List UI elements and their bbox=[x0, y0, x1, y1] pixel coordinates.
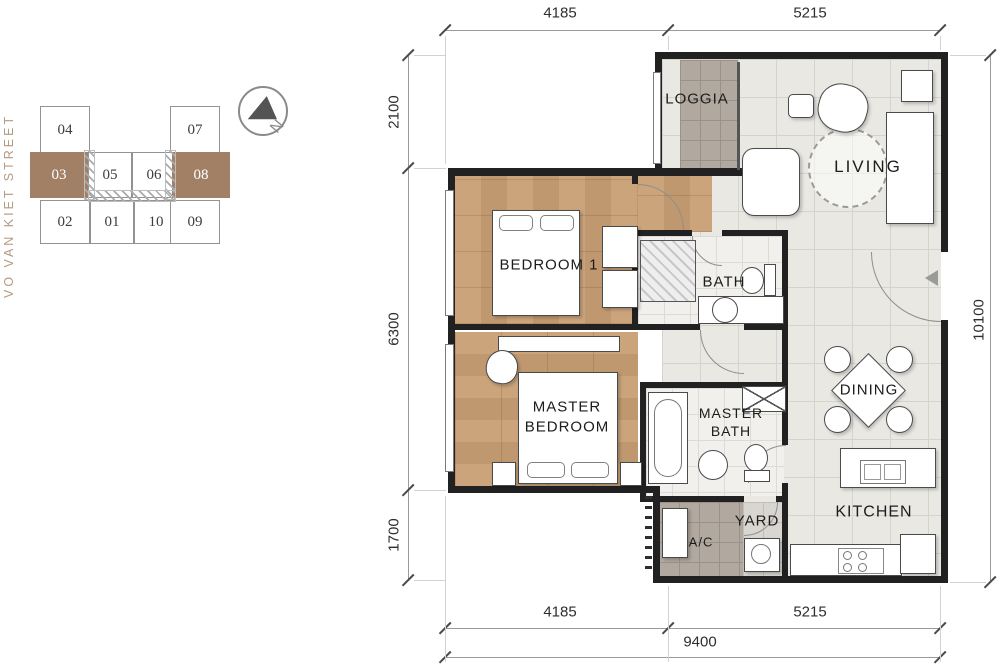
dim-left-1700: 1700 bbox=[386, 518, 403, 551]
dim-extension bbox=[668, 586, 669, 662]
dining-chair bbox=[886, 346, 913, 373]
key-plan-unit-03-highlighted: 03 bbox=[30, 152, 88, 198]
wall-right-upper bbox=[941, 52, 948, 252]
unit-number: 08 bbox=[194, 167, 209, 184]
dim-bottom-total: 9400 bbox=[683, 634, 716, 651]
dim-extension bbox=[414, 55, 446, 56]
wardrobe bbox=[602, 270, 638, 308]
wall-bath-top-right bbox=[722, 230, 788, 236]
dim-bottom-left: 4185 bbox=[543, 604, 576, 621]
ac-louver-icon bbox=[645, 496, 652, 576]
wall-bedroom1-top bbox=[448, 168, 748, 176]
unit-number: 10 bbox=[149, 214, 164, 231]
unit-number: 01 bbox=[105, 214, 120, 231]
shower bbox=[640, 240, 696, 302]
dim-line-left bbox=[408, 55, 409, 580]
unit-number: 07 bbox=[188, 122, 203, 139]
pillow bbox=[499, 215, 533, 231]
unit-number: 09 bbox=[188, 214, 203, 231]
wall-bath-top-left bbox=[632, 230, 692, 236]
dim-top-right: 5215 bbox=[793, 5, 826, 22]
label-ac: A/C bbox=[689, 535, 714, 552]
window-loggia bbox=[653, 72, 661, 164]
dim-extension bbox=[668, 36, 669, 50]
key-plan-unit-01: 01 bbox=[90, 200, 134, 244]
burner-icon bbox=[843, 551, 852, 560]
side-table bbox=[788, 94, 814, 118]
dim-line-bottom-total bbox=[445, 657, 940, 658]
label-living: LIVING bbox=[834, 156, 902, 178]
wall-yard-kitchen-divider bbox=[782, 502, 788, 576]
dim-extension bbox=[414, 490, 446, 491]
dim-bottom-right: 5215 bbox=[793, 604, 826, 621]
entry-arrow-icon bbox=[925, 270, 938, 286]
key-plan-corridor-hatch bbox=[88, 190, 176, 202]
bath-sink bbox=[712, 297, 738, 323]
dim-line-bottom bbox=[445, 628, 940, 629]
dim-extension bbox=[445, 496, 446, 662]
pillow bbox=[527, 462, 565, 478]
label-kitchen: KITCHEN bbox=[835, 503, 912, 524]
key-plan-unit-09: 09 bbox=[170, 200, 220, 244]
key-plan-unit-08-highlighted: 08 bbox=[172, 152, 230, 198]
dim-line-top bbox=[445, 30, 940, 31]
wall-right-lower bbox=[941, 320, 948, 583]
dim-extension bbox=[950, 55, 986, 56]
wall-bedroom1-right-stub bbox=[632, 176, 638, 184]
label-master-bedroom: MASTER BEDROOM bbox=[507, 398, 627, 437]
dim-extension bbox=[940, 586, 941, 662]
label-master-bath: MASTER BATH bbox=[688, 404, 774, 440]
floor-plan-page: VO VAN KIET STREET 04 07 03 05 06 08 02 … bbox=[0, 0, 1000, 668]
sink-bowl bbox=[864, 464, 881, 480]
label-yard: YARD bbox=[735, 511, 780, 531]
toilet-tank bbox=[744, 470, 770, 482]
window-bedroom1 bbox=[445, 190, 454, 316]
unit-number: 03 bbox=[52, 167, 67, 184]
label-loggia: LOGGIA bbox=[665, 89, 729, 109]
toilet bbox=[744, 444, 768, 472]
washer-door-icon bbox=[751, 544, 771, 564]
wall-master-bottom bbox=[448, 486, 660, 493]
cabinet bbox=[901, 70, 933, 102]
street-label: VO VAN KIET STREET bbox=[2, 88, 16, 324]
dim-extension bbox=[414, 168, 446, 169]
dim-extension bbox=[950, 582, 986, 583]
label-dining: DINING bbox=[840, 380, 899, 400]
dim-line-right bbox=[990, 55, 991, 582]
dining-chair bbox=[824, 346, 851, 373]
window-master-bedroom bbox=[445, 344, 454, 472]
key-plan-unit-02: 02 bbox=[40, 200, 90, 244]
dim-extension bbox=[414, 580, 446, 581]
dim-right-10100: 10100 bbox=[971, 299, 988, 341]
burner-icon bbox=[843, 563, 852, 572]
wall-loggia-balustrade bbox=[737, 62, 740, 170]
wall-bottom bbox=[655, 576, 948, 583]
dining-chair bbox=[824, 406, 851, 433]
master-bath-sink bbox=[698, 450, 728, 480]
dim-left-2100: 2100 bbox=[386, 95, 403, 128]
dim-top-left: 4185 bbox=[543, 5, 576, 22]
pillow bbox=[571, 462, 609, 478]
sink-bowl bbox=[884, 464, 901, 480]
fridge bbox=[900, 534, 936, 574]
sofa bbox=[742, 148, 800, 216]
toilet-tank bbox=[764, 264, 776, 296]
bath-vanity bbox=[698, 296, 784, 324]
key-plan-unit-04: 04 bbox=[40, 106, 90, 154]
unit-number: 05 bbox=[103, 167, 118, 184]
bathtub-inner bbox=[654, 399, 682, 477]
nightstand bbox=[492, 462, 516, 486]
wardrobe bbox=[602, 226, 638, 268]
wall-yard-top-left bbox=[640, 496, 744, 502]
dim-extension bbox=[940, 36, 941, 50]
floor-loggia bbox=[680, 60, 738, 168]
burner-icon bbox=[858, 563, 867, 572]
wall-bedrooms-divider bbox=[448, 324, 700, 330]
label-bedroom1: BEDROOM 1 bbox=[499, 255, 598, 275]
burner-icon bbox=[858, 551, 867, 560]
label-bath: BATH bbox=[703, 272, 746, 292]
nightstand bbox=[620, 462, 642, 486]
dim-left-6300: 6300 bbox=[386, 312, 403, 345]
unit-number: 04 bbox=[58, 122, 73, 139]
ac-unit bbox=[662, 508, 688, 558]
unit-number: 02 bbox=[58, 214, 73, 231]
desk bbox=[498, 336, 620, 352]
key-plan-unit-07: 07 bbox=[170, 106, 220, 154]
pillow bbox=[540, 215, 574, 231]
wall-bath-right bbox=[782, 230, 788, 445]
dining-chair bbox=[886, 406, 913, 433]
wall-top bbox=[655, 52, 948, 59]
unit-number: 06 bbox=[147, 167, 162, 184]
